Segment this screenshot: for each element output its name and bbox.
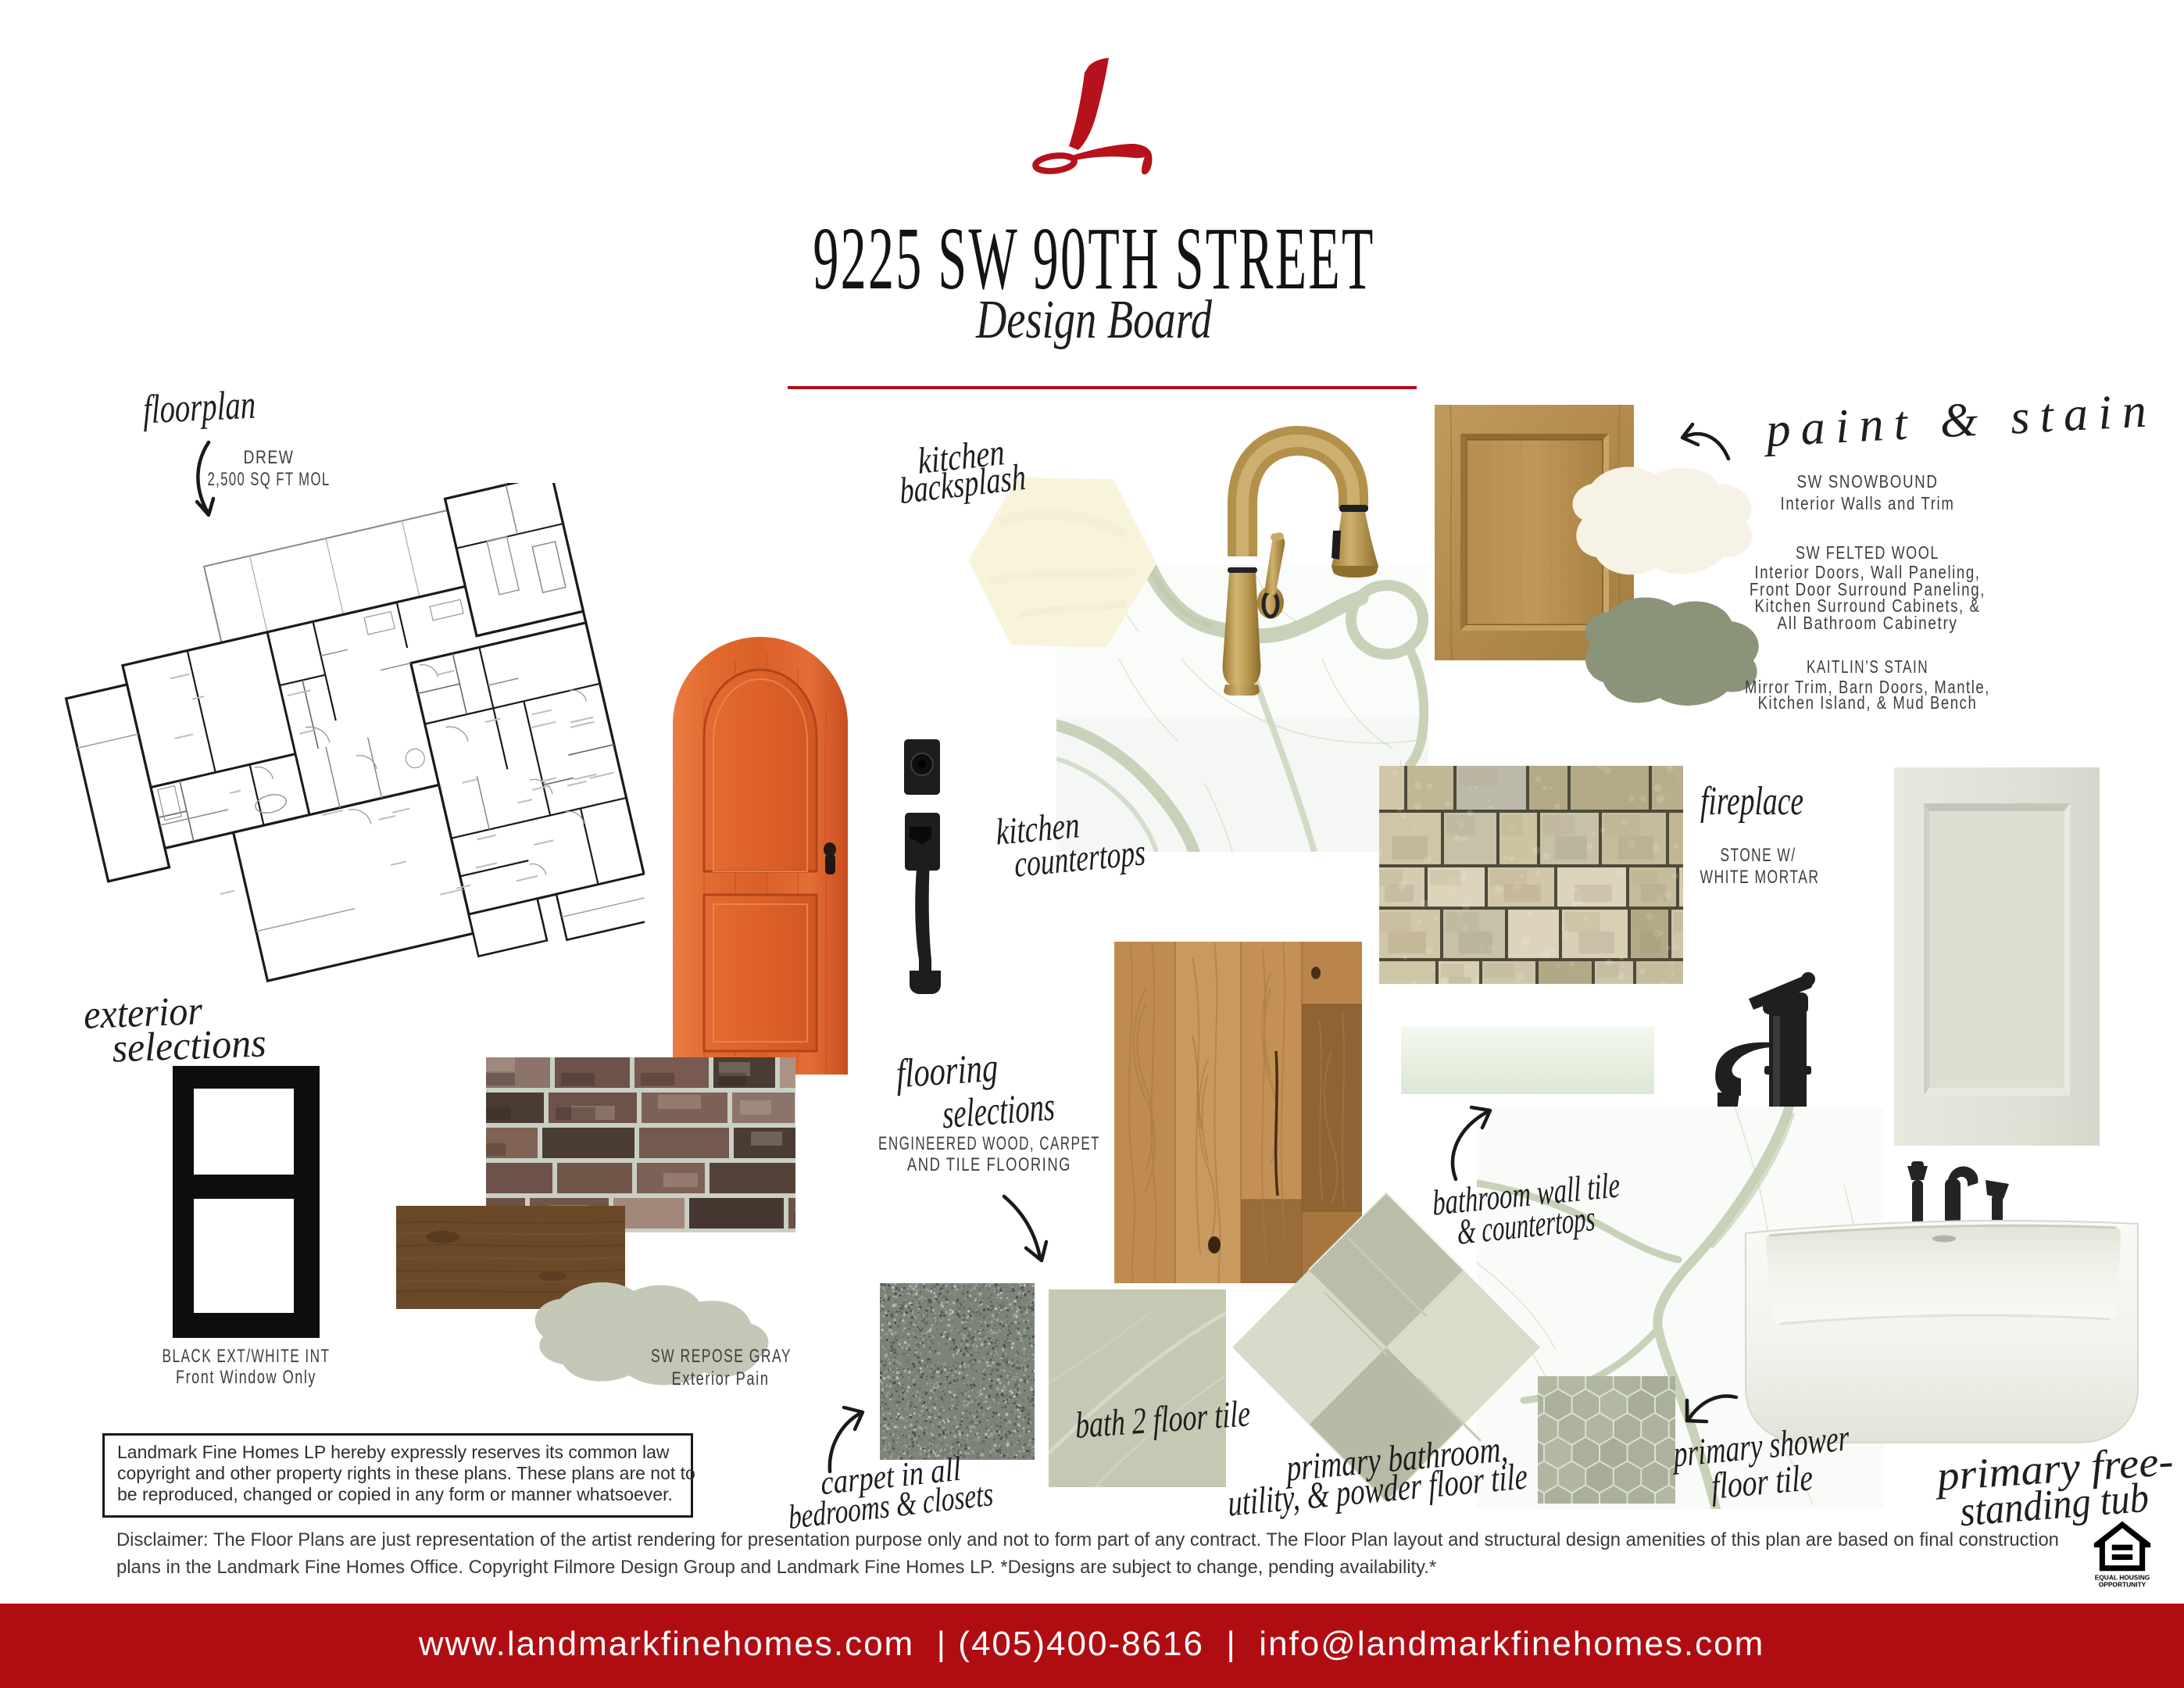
svg-text:OPPORTUNITY: OPPORTUNITY [2099,1581,2146,1589]
